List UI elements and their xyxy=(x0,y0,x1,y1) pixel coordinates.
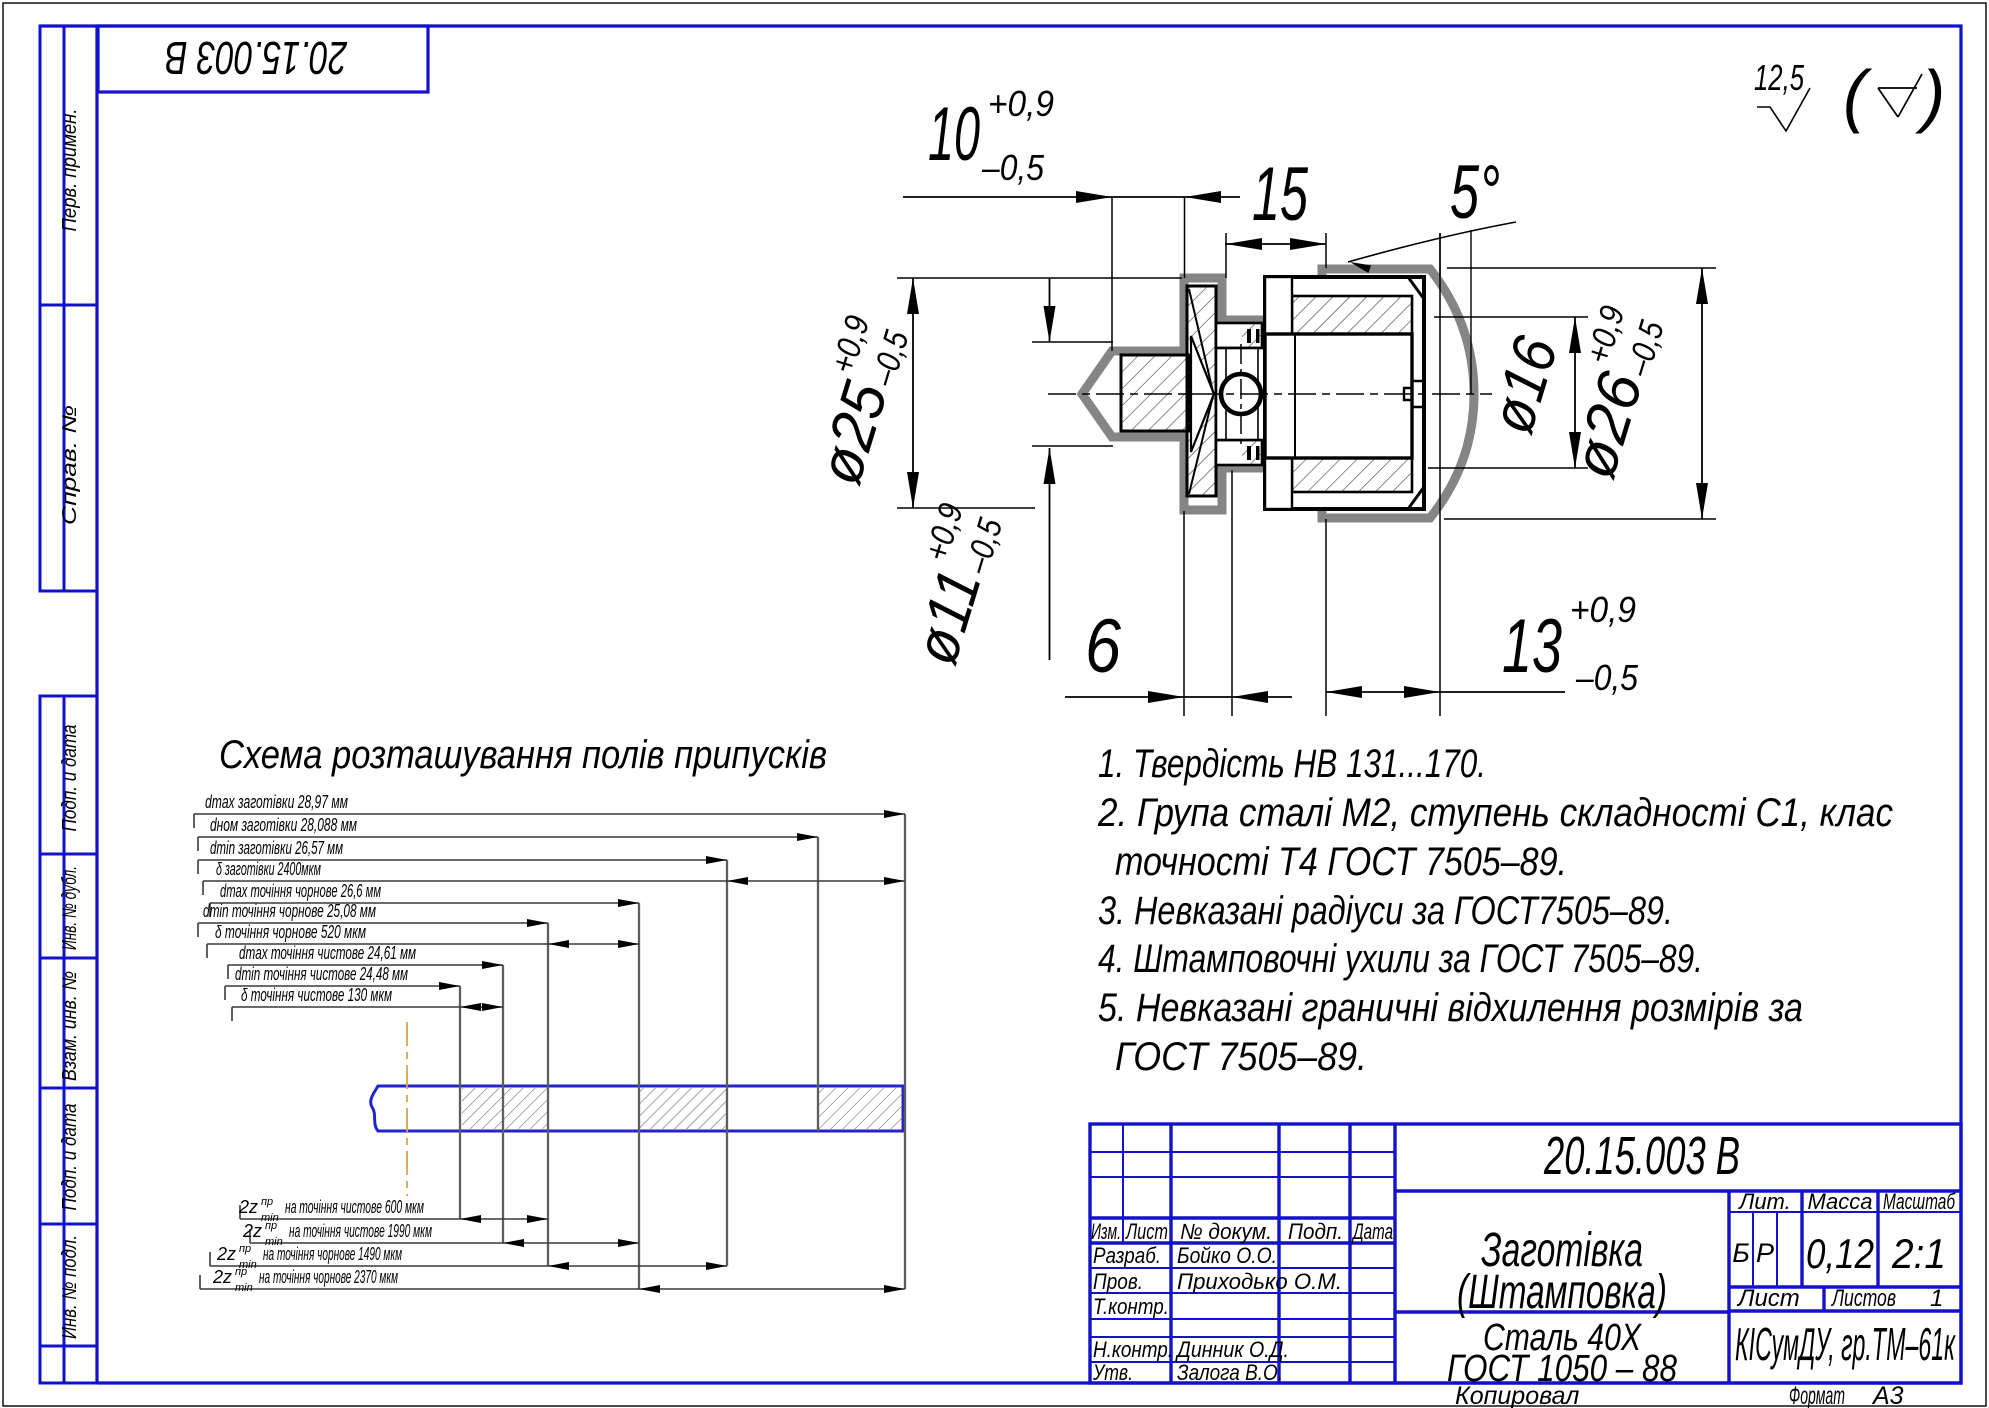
svg-text:+0,9: +0,9 xyxy=(988,83,1054,124)
svg-text:3. Невказані радіуси за ГОСТ75: 3. Невказані радіуси за ГОСТ7505–89. xyxy=(1098,889,1673,933)
svg-text:Копировал: Копировал xyxy=(1455,1382,1579,1408)
svg-text:на точіння чистове 1990 мкм: на точіння чистове 1990 мкм xyxy=(289,1221,432,1241)
svg-text:2z: 2z xyxy=(242,1221,262,1241)
svg-text:δ точіння чорнове 520 мкм: δ точіння чорнове 520 мкм xyxy=(215,922,366,942)
svg-text:Р: Р xyxy=(1756,1238,1774,1268)
svg-text:на точіння чистове 600 мкм: на точіння чистове 600 мкм xyxy=(285,1197,424,1217)
svg-text:Н.контр.: Н.контр. xyxy=(1093,1337,1173,1362)
svg-text:точності Т4 ГОСТ 7505–89.: точності Т4 ГОСТ 7505–89. xyxy=(1115,840,1567,884)
svg-text:Динник О.Д.: Динник О.Д. xyxy=(1174,1337,1289,1362)
svg-text:ГОСТ 7505–89.: ГОСТ 7505–89. xyxy=(1115,1035,1367,1079)
svg-text:Лит.: Лит. xyxy=(1737,1189,1791,1214)
svg-text:Дата: Дата xyxy=(1351,1219,1393,1244)
svg-text:Залога В.О.: Залога В.О. xyxy=(1177,1360,1283,1385)
svg-text:Т.контр.: Т.контр. xyxy=(1093,1294,1169,1319)
svg-text:на точіння чорнове 2370 мкм: на точіння чорнове 2370 мкм xyxy=(259,1267,398,1287)
svg-text:пр: пр xyxy=(235,1266,247,1278)
svg-text:КІСумДУ, гр.ТМ–61к: КІСумДУ, гр.ТМ–61к xyxy=(1735,1318,1956,1370)
svg-text:δ заготівки 2400мкм: δ заготівки 2400мкм xyxy=(216,859,321,879)
svg-text:δ точіння чистове 130 мкм: δ точіння чистове 130 мкм xyxy=(241,985,392,1005)
svg-text:Масштаб: Масштаб xyxy=(1883,1189,1956,1214)
svg-text:15: 15 xyxy=(1252,152,1308,237)
svg-text:Разраб.: Разраб. xyxy=(1093,1243,1161,1268)
svg-text:Взам. инв. №: Взам. инв. № xyxy=(59,971,81,1081)
svg-text:min: min xyxy=(235,1282,253,1294)
svg-text:Листов: Листов xyxy=(1831,1285,1896,1312)
svg-text:6: 6 xyxy=(1085,604,1122,689)
svg-text:на точіння чорнове 1490 мкм: на точіння чорнове 1490 мкм xyxy=(263,1244,402,1264)
svg-text:dmax точіння чорнове 26,6 мм: dmax точіння чорнове 26,6 мм xyxy=(220,881,381,901)
svg-text:(Штамповка): (Штамповка) xyxy=(1457,1266,1667,1319)
svg-text:ø16: ø16 xyxy=(1477,329,1571,441)
svg-text:): ) xyxy=(1915,56,1945,134)
svg-text:Схема розташування полів припу: Схема розташування полів припусків xyxy=(219,733,827,777)
svg-text:Масса: Масса xyxy=(1807,1189,1872,1214)
svg-text:5°: 5° xyxy=(1450,150,1500,235)
svg-text:А3: А3 xyxy=(1871,1382,1904,1408)
svg-text:10: 10 xyxy=(928,92,980,177)
svg-text:ø11: ø11 xyxy=(901,562,994,672)
svg-text:dном заготівки 28,088 мм: dном заготівки 28,088 мм xyxy=(210,815,357,835)
svg-text:1. Твердість НВ 131...170.: 1. Твердість НВ 131...170. xyxy=(1098,742,1486,786)
svg-text:20.15.003 В: 20.15.003 В xyxy=(1543,1126,1740,1186)
svg-text:пр: пр xyxy=(239,1243,251,1255)
svg-text:2z: 2z xyxy=(238,1197,258,1217)
svg-text:Перв. примен.: Перв. примен. xyxy=(59,109,81,232)
svg-text:20.15.003 В: 20.15.003 В xyxy=(165,32,348,84)
svg-text:2. Група сталі М2, ступень скл: 2. Група сталі М2, ступень складності С1… xyxy=(1097,791,1893,835)
svg-text:пр: пр xyxy=(261,1196,273,1208)
svg-text:–0,5: –0,5 xyxy=(981,147,1045,188)
svg-text:4. Штамповочні ухили за ГОСТ 7: 4. Штамповочні ухили за ГОСТ 7505–89. xyxy=(1098,937,1703,981)
svg-text:dmin точіння чистове 24,48 мм: dmin точіння чистове 24,48 мм xyxy=(235,964,408,984)
svg-text:Изм.: Изм. xyxy=(1091,1219,1121,1244)
svg-text:(: ( xyxy=(1843,56,1873,134)
svg-text:Пров.: Пров. xyxy=(1093,1269,1143,1294)
svg-text:№ докум.: № докум. xyxy=(1180,1219,1272,1244)
svg-text:пр: пр xyxy=(265,1220,277,1232)
svg-text:1: 1 xyxy=(1930,1285,1943,1312)
svg-text:dmin точіння чорнове 25,08 мм: dmin точіння чорнове 25,08 мм xyxy=(203,901,376,921)
svg-text:0,12: 0,12 xyxy=(1806,1230,1874,1277)
svg-text:min: min xyxy=(265,1236,283,1248)
svg-text:Формат: Формат xyxy=(1789,1382,1845,1408)
svg-text:Лист: Лист xyxy=(1125,1219,1168,1244)
svg-text:+0,9: +0,9 xyxy=(1570,589,1636,630)
svg-text:ø26: ø26 xyxy=(1559,364,1656,486)
svg-text:Справ. №: Справ. № xyxy=(59,405,81,525)
svg-text:2z: 2z xyxy=(216,1244,236,1264)
svg-text:Бойко О.О.: Бойко О.О. xyxy=(1177,1243,1277,1268)
svg-text:Утв.: Утв. xyxy=(1092,1360,1133,1385)
svg-text:Б: Б xyxy=(1732,1238,1750,1268)
svg-text:Подп. и дата: Подп. и дата xyxy=(59,725,81,832)
svg-text:dmin заготівки 26,57 мм: dmin заготівки 26,57 мм xyxy=(210,838,343,858)
svg-text:Инв. № дубл.: Инв. № дубл. xyxy=(59,866,81,950)
svg-text:Приходько О.М.: Приходько О.М. xyxy=(1177,1269,1342,1294)
svg-text:dmax заготівки 28,97 мм: dmax заготівки 28,97 мм xyxy=(205,792,348,812)
svg-text:12,5: 12,5 xyxy=(1754,57,1805,98)
svg-text:ø25: ø25 xyxy=(805,374,901,492)
svg-text:5. Невказані граничні відхилен: 5. Невказані граничні відхилення розмірі… xyxy=(1098,986,1803,1030)
svg-text:Подп. и дата: Подп. и дата xyxy=(59,1104,81,1211)
svg-text:Лист: Лист xyxy=(1736,1285,1800,1312)
svg-text:dmax точіння чистове 24,61 мм: dmax точіння чистове 24,61 мм xyxy=(239,943,416,963)
svg-text:13: 13 xyxy=(1502,604,1562,689)
svg-text:Подп.: Подп. xyxy=(1288,1219,1343,1244)
svg-text:2z: 2z xyxy=(212,1267,232,1287)
svg-text:2:1: 2:1 xyxy=(1891,1230,1946,1277)
svg-text:–0,5: –0,5 xyxy=(1575,657,1639,698)
svg-text:Инв. № подл.: Инв. № подл. xyxy=(59,1235,81,1339)
